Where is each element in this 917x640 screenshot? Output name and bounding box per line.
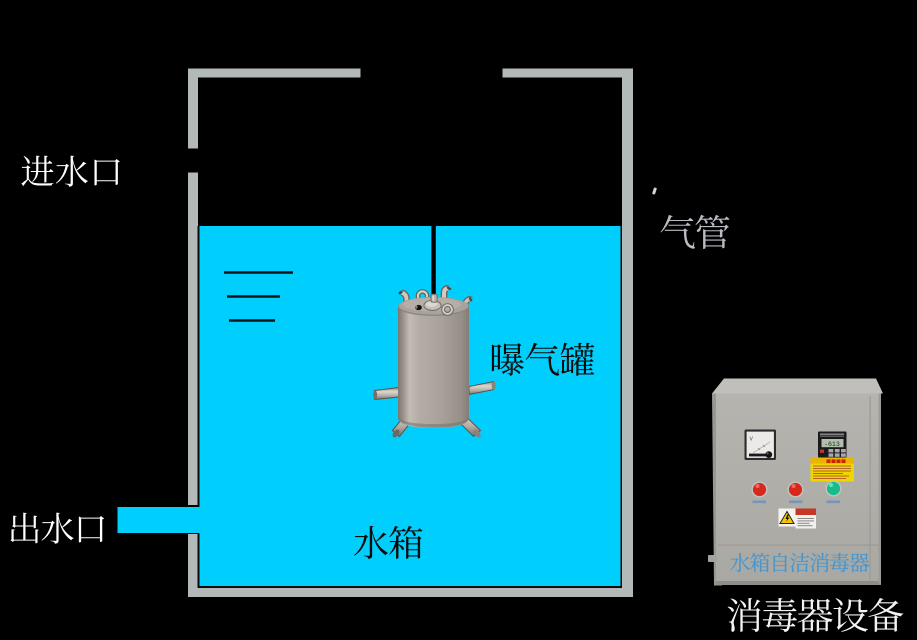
svg-text:-613: -613 bbox=[824, 441, 840, 448]
